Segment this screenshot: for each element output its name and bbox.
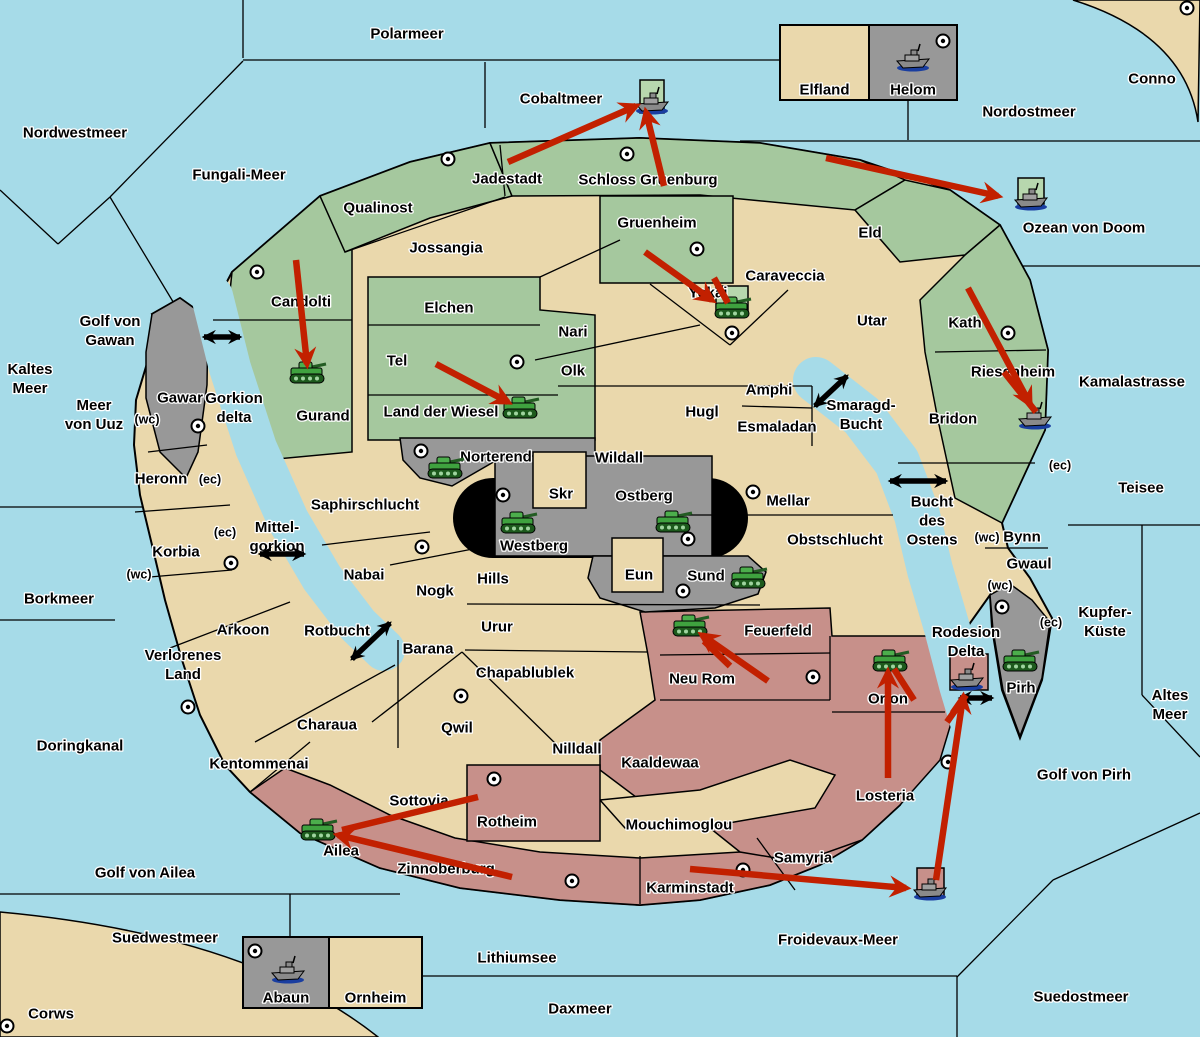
region-label: Land der Wiesel [384,403,499,420]
region-label: Eun [625,566,653,583]
region-label: Nogk [416,582,454,599]
region-label: Losteria [856,787,915,804]
supply-center-dot [1,1020,14,1033]
supply-center-dot [621,148,634,161]
region-label: Olk [561,362,586,379]
region-label: Gruenheim [617,214,696,231]
supply-center-dot [996,601,1009,614]
supply-center-dot [442,153,455,166]
region-label: Caraveccia [745,267,825,284]
region-label: Bynn [1003,528,1041,545]
supply-center-dot [747,486,760,499]
region-label: Norterend [460,448,532,465]
supply-center-dot [691,243,704,256]
map-root: PolarmeerNordwestmeerFungali-MeerCobaltm… [0,0,1200,1037]
region-label: Wildall [595,449,643,466]
supply-center-dot [566,875,579,888]
sea-label: Suedostmeer [1033,988,1128,1005]
region-label: Jadestadt [472,170,542,187]
region-label: Barana [403,640,455,657]
sea-label: Conno [1128,70,1175,87]
supply-center-dot [455,690,468,703]
region-label: Qwil [441,719,473,736]
legend-label: Ornheim [345,989,407,1006]
sea-label: Golf von Ailea [95,864,196,881]
coast-label: (ec) [199,472,221,486]
region-label: Arkoon [217,621,270,638]
region-label: Gawar [157,389,203,406]
coast-label: (ec) [1049,458,1071,472]
region-label: Tel [387,352,408,369]
region-label: Hugl [685,403,718,420]
region-label: Heronn [135,470,188,487]
supply-center-dot [416,541,429,554]
region-label: Kaaldewaa [621,754,699,771]
region-eun[interactable] [612,538,663,592]
sea-label: Doringkanal [37,737,124,754]
sea-label: Fungali-Meer [192,166,286,183]
region-label: Westberg [500,537,568,554]
legend-label: Abaun [263,989,310,1006]
region-label: Chapablublek [476,664,575,681]
region-label: Jossangia [409,239,483,256]
supply-center-dot [1181,2,1194,15]
region-label: Rotheim [477,813,537,830]
region-label: Feuerfeld [744,622,812,639]
coast-label: (ec) [214,525,236,539]
supply-center-dot [1002,327,1015,340]
region-label: Obstschlucht [787,531,883,548]
coast-label: (ec) [1040,615,1062,629]
region-label: Utar [857,312,887,329]
region-label: Korbia [152,543,200,560]
region-label: Mellar [766,492,810,509]
sea-label: Cobaltmeer [520,90,603,107]
supply-center-dot [182,701,195,714]
region-label: Hills [477,570,509,587]
supply-center-dot [192,420,205,433]
region-label: Nabai [344,566,385,583]
sea-label: Borkmeer [24,590,94,607]
region-label: Esmaladan [737,418,816,435]
region-label: Ailea [323,842,360,859]
region-label: Gwaul [1006,555,1051,572]
supply-center-dot [937,35,950,48]
region-label: Pirh [1006,679,1035,696]
legend-label: Elfland [799,81,849,98]
region-label: Urur [481,618,513,635]
region-label: Sund [687,567,725,584]
region-label: Gurand [296,407,349,424]
supply-center-dot [225,557,238,570]
coast-label: (wc) [127,567,152,581]
region-label: Schloss Gruenburg [578,171,717,188]
region-label: Elchen [424,299,473,316]
region-label: Charaua [297,716,358,733]
supply-center-dot [251,266,264,279]
region-label: Skr [549,485,573,502]
supply-center-dot [511,356,524,369]
sea-label: Polarmeer [370,25,444,42]
region-label: Kath [948,314,981,331]
supply-center-dot [807,671,820,684]
region-label: Samyria [774,849,833,866]
game-map[interactable]: PolarmeerNordwestmeerFungali-MeerCobaltm… [0,0,1200,1037]
supply-center-dot [682,533,695,546]
coast-label: (wc) [975,530,1000,544]
sea-label: Golf von Pirh [1037,766,1131,783]
region-label: Karminstadt [646,879,734,896]
region-label: Bridon [929,410,977,427]
supply-center-dot [497,489,510,502]
sea-label: Kamalastrasse [1079,373,1185,390]
region-label: Nari [558,323,587,340]
legend-label: Helom [890,81,936,98]
sea-label: Lithiumsee [477,949,556,966]
supply-center-dot [677,585,690,598]
region-label: Nilldall [552,740,601,757]
region-label: Kentommenai [209,755,308,772]
sea-label: Suedwestmeer [112,929,218,946]
supply-center-dot [726,327,739,340]
sea-label: Ozean von Doom [1023,219,1146,236]
sea-label: Corws [28,1005,74,1022]
region-label: Qualinost [343,199,412,216]
region-label: Saphirschlucht [311,496,419,513]
region-label: Amphi [746,381,793,398]
region-label: Neu Rom [669,670,735,687]
region-label: Ostberg [615,487,673,504]
coast-label: (wc) [988,578,1013,592]
sea-label: Nordwestmeer [23,124,127,141]
sea-label: Rotbucht [304,622,370,639]
supply-center-dot [488,773,501,786]
coast-label: (wc) [135,412,160,426]
supply-center-dot [415,445,428,458]
sea-label: Teisee [1118,479,1164,496]
region-label: Eld [858,224,881,241]
supply-center-dot [249,945,262,958]
sea-label: Nordostmeer [982,103,1076,120]
region-label: Mouchimoglou [626,816,733,833]
sea-label: Froidevaux-Meer [778,931,898,948]
sea-label: Daxmeer [548,1000,612,1017]
